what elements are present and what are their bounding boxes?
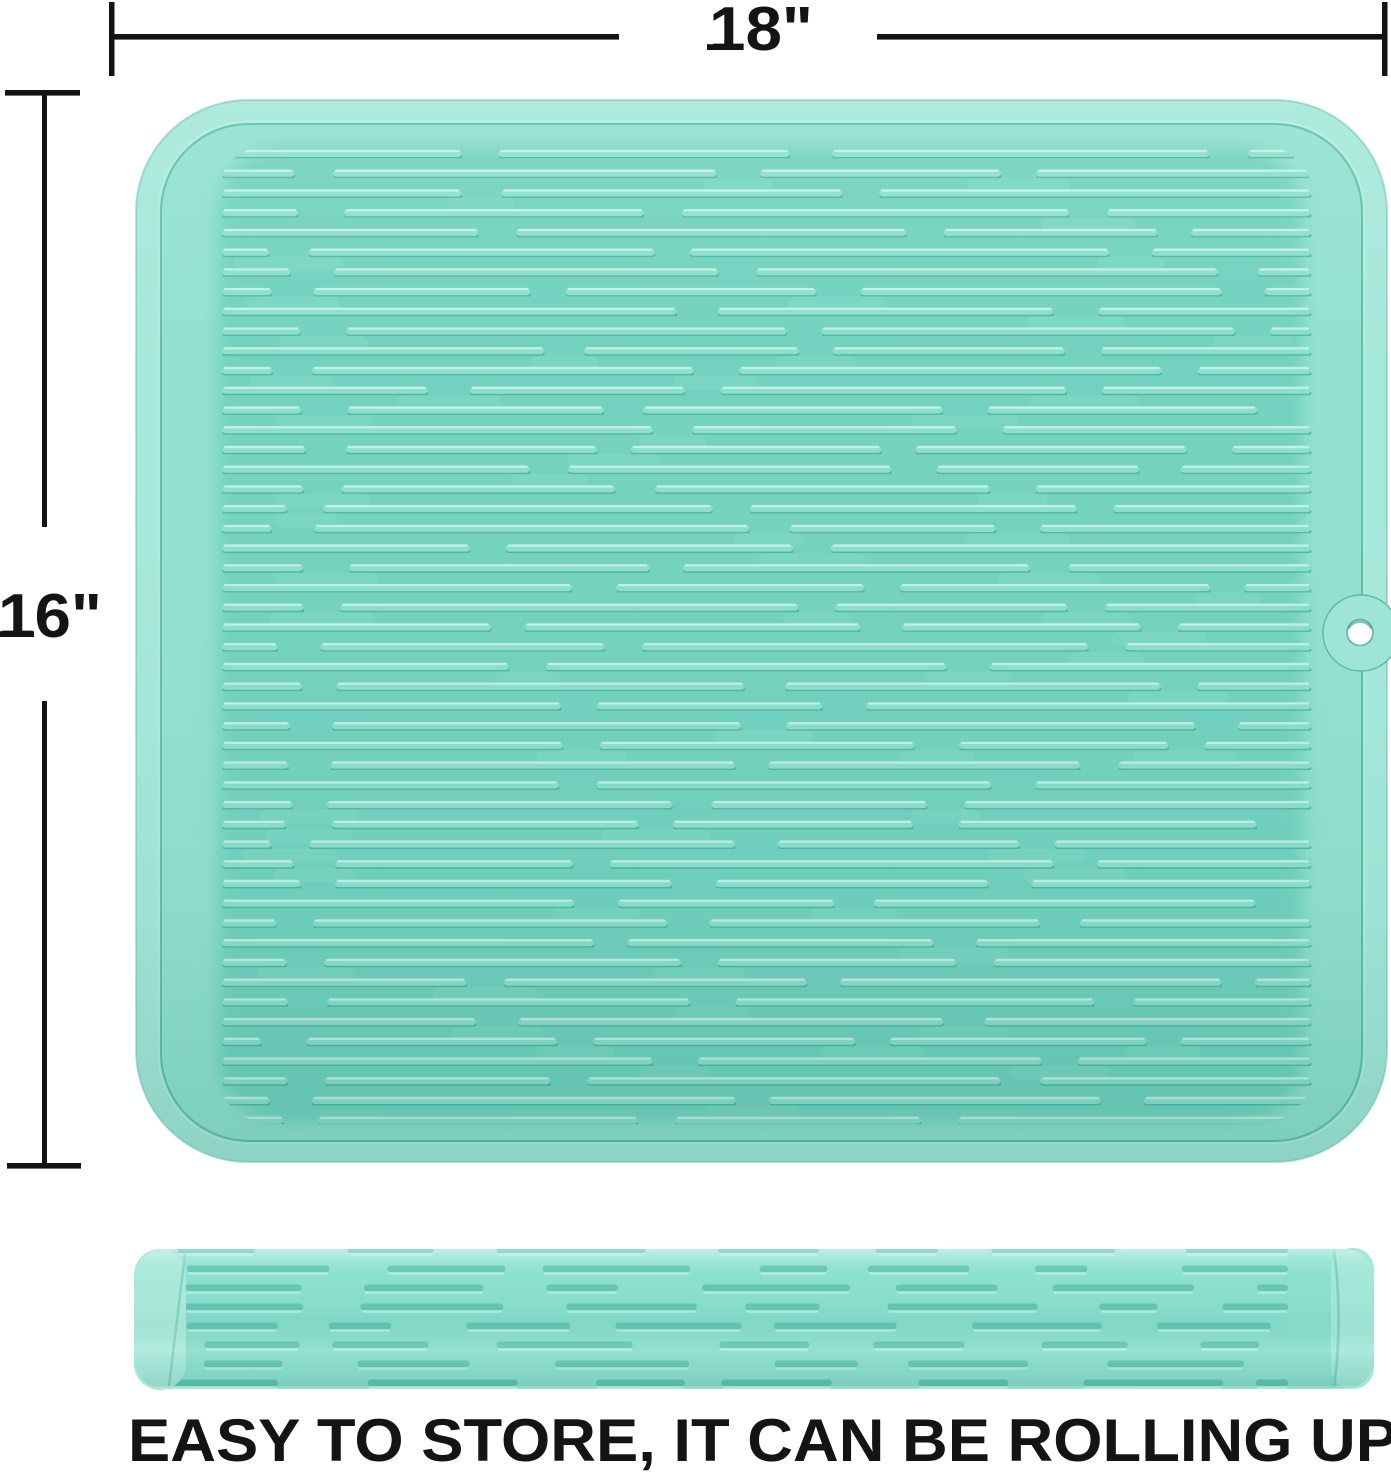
svg-text:EASY TO STORE, IT CAN BE ROLLI: EASY TO STORE, IT CAN BE ROLLING UP [128,1407,1391,1474]
svg-text:16": 16" [0,582,102,651]
svg-text:18": 18" [709,0,813,64]
